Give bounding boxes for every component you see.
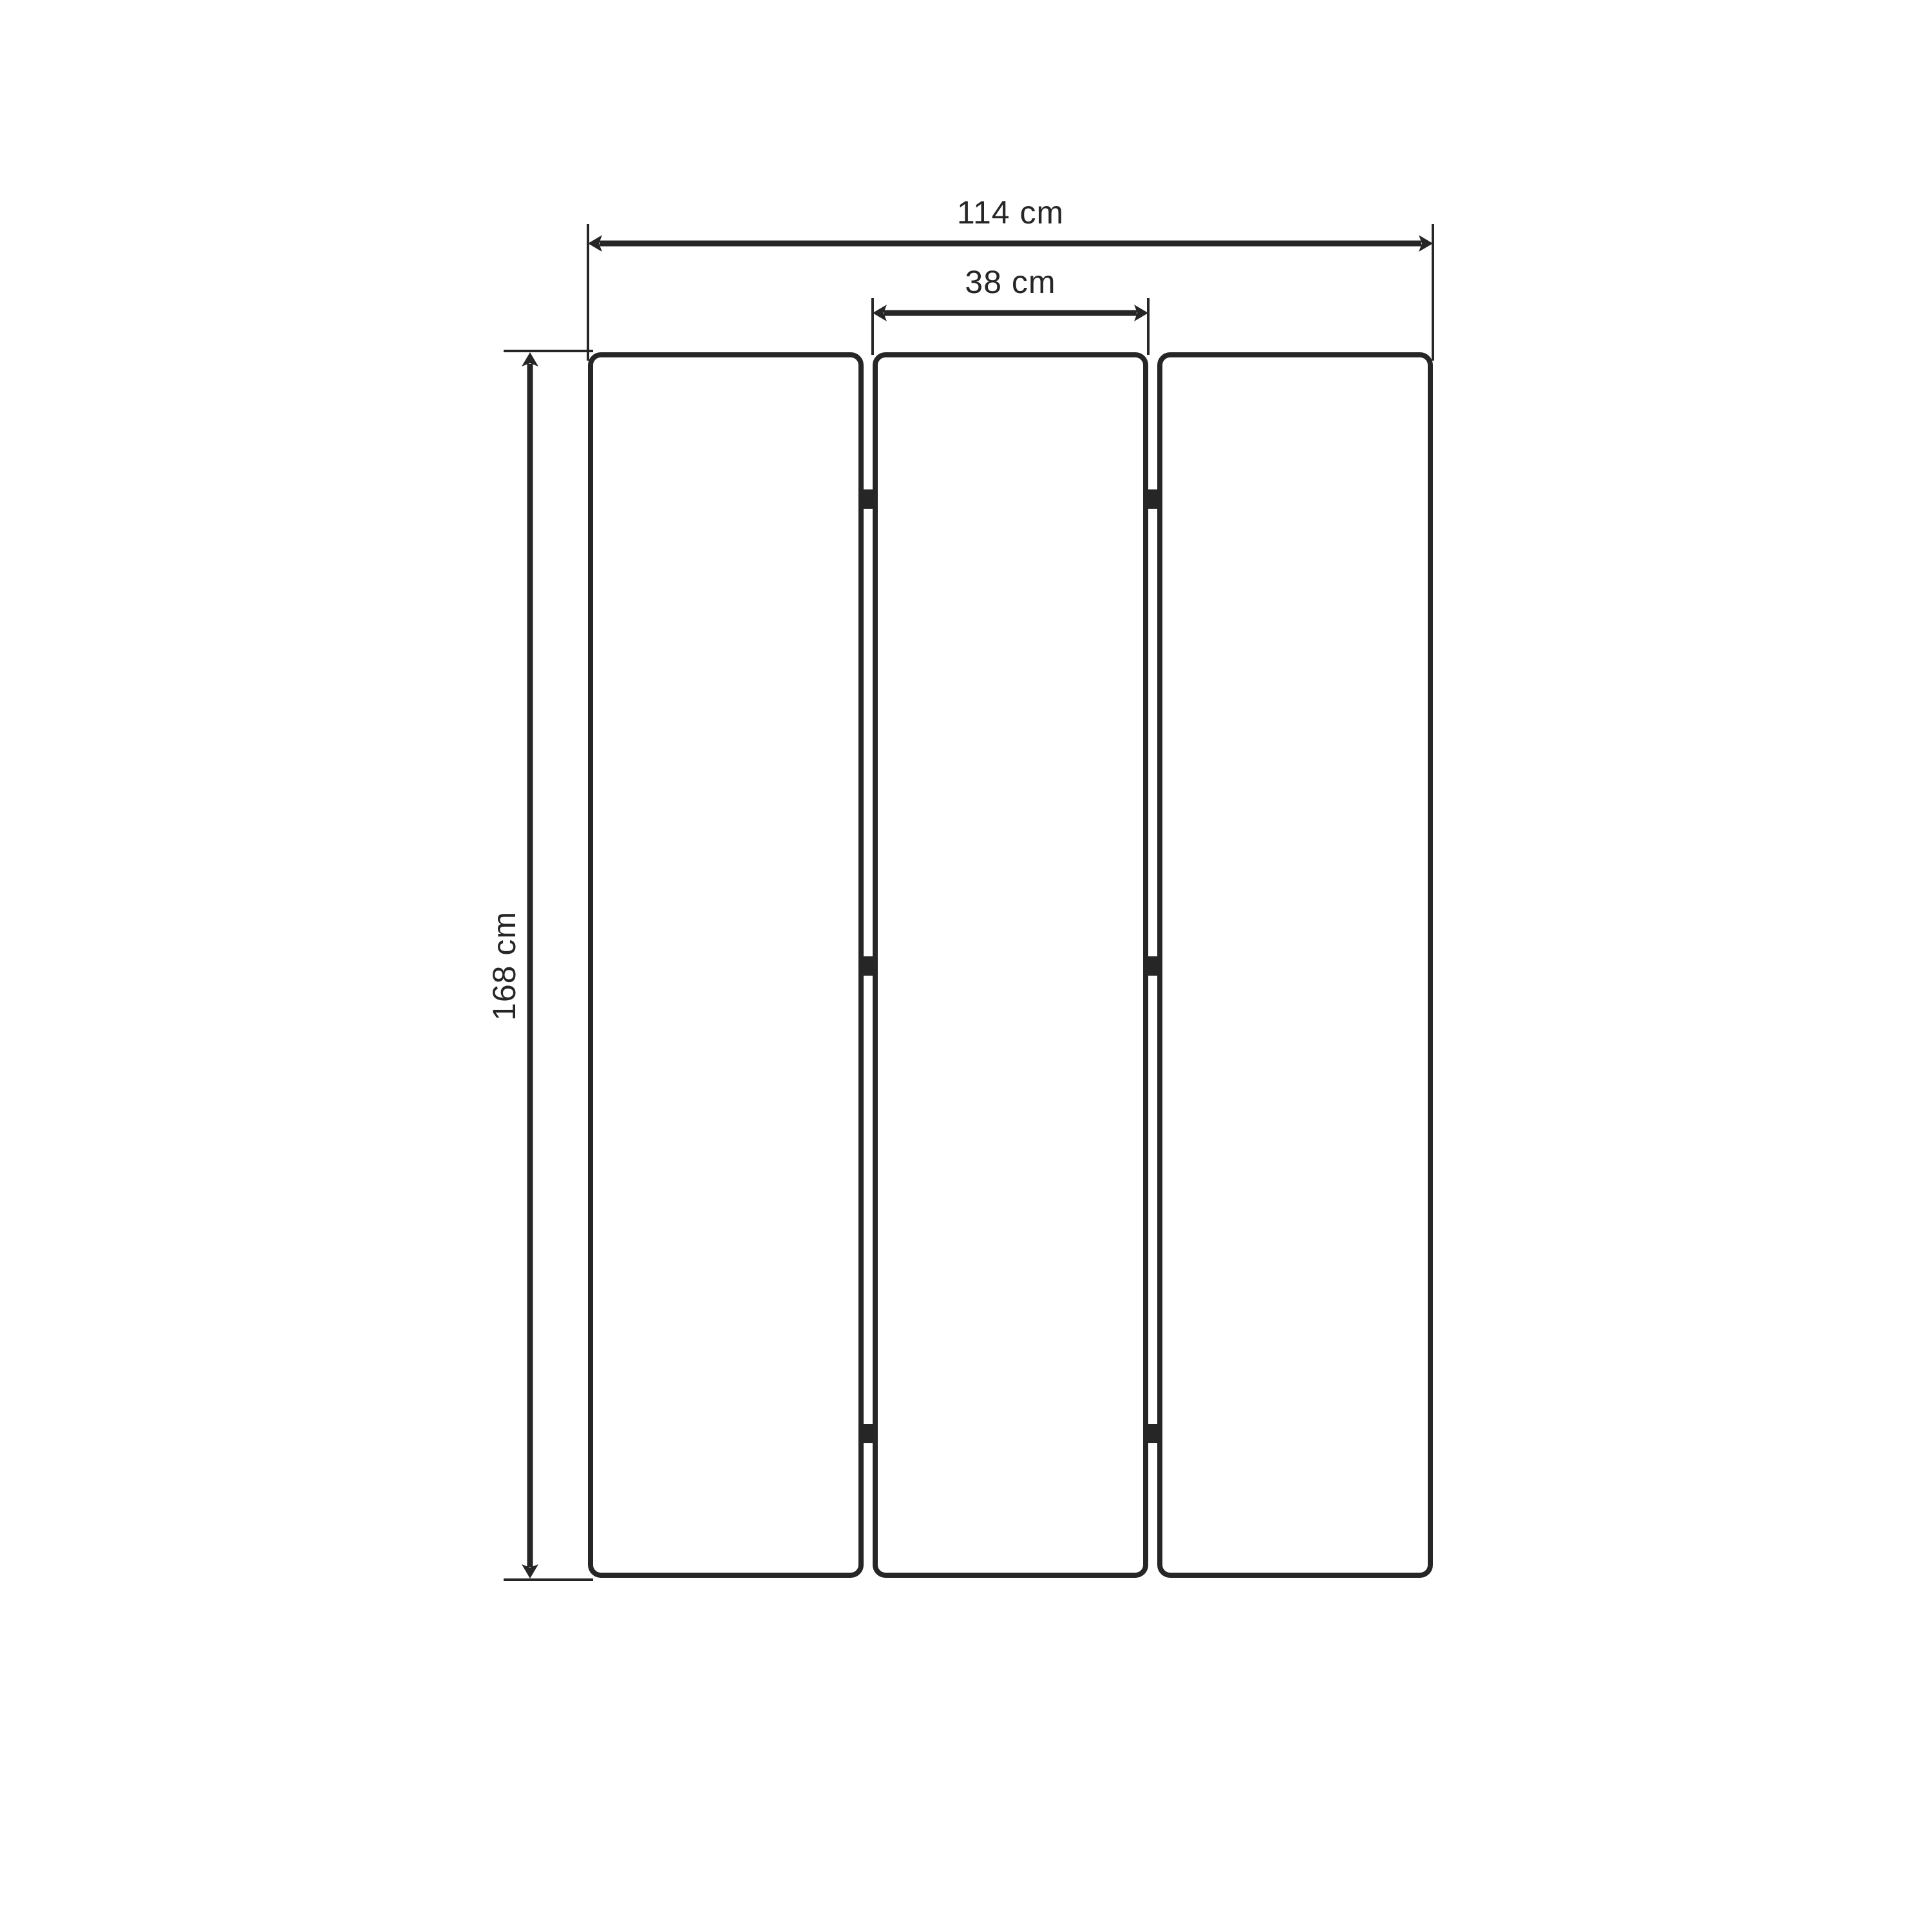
hinge-mark [861,1424,875,1443]
panel-middle [875,355,1146,1575]
hinge-mark [861,956,875,976]
hinge-mark [1146,489,1160,509]
panel-width-label: 38 cm [965,264,1056,300]
hinge-mark [1146,956,1160,976]
hinge-mark [861,489,875,509]
technical-drawing-canvas: 114 cm 38 cm 168 cm [0,0,1932,1932]
hinge-mark [1146,1424,1160,1443]
height-label: 168 cm [486,911,522,1021]
dimension-diagram: 114 cm 38 cm 168 cm [0,0,1932,1932]
dimension-height: 168 cm [486,351,593,1580]
total-width-label: 114 cm [957,194,1064,231]
panel-group [591,355,1430,1575]
panel-left [591,355,861,1575]
dimension-panel-width: 38 cm [873,264,1148,355]
panel-right [1160,355,1430,1575]
